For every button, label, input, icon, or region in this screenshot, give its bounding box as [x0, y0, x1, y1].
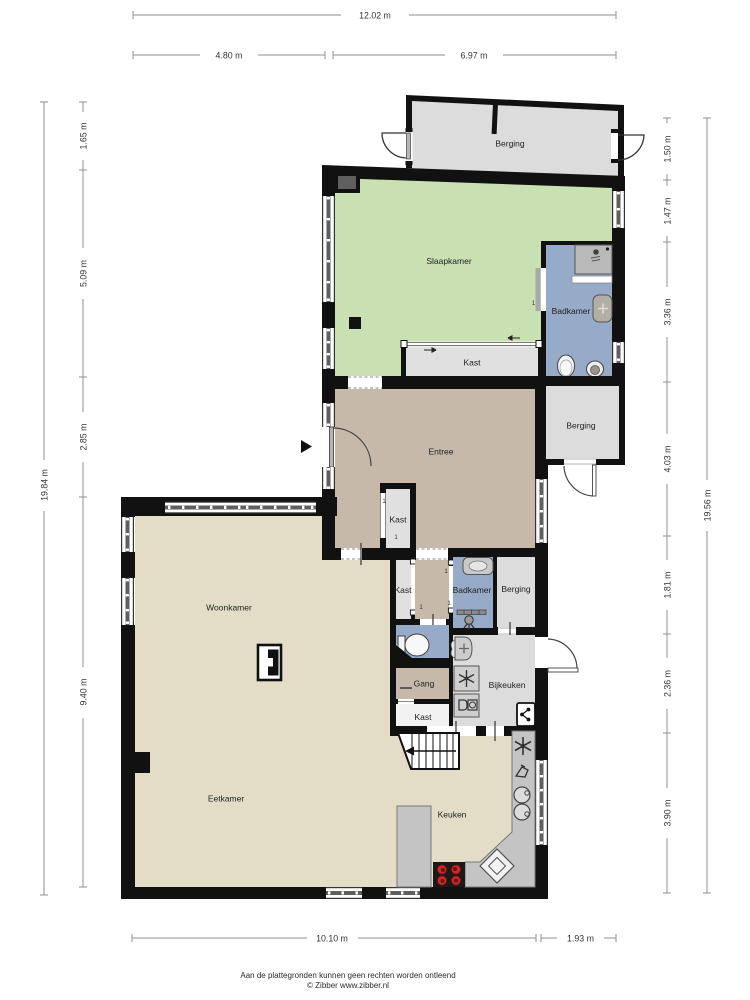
svg-text:Slaapkamer: Slaapkamer: [426, 256, 472, 266]
svg-text:Aan de plattegronden kunnen ge: Aan de plattegronden kunnen geen rechten…: [240, 971, 455, 980]
svg-text:2.36 m: 2.36 m: [663, 670, 673, 697]
svg-text:Berging: Berging: [501, 584, 531, 594]
svg-text:Kast: Kast: [414, 712, 432, 722]
svg-text:1.47 m: 1.47 m: [663, 198, 673, 225]
svg-text:1.81 m: 1.81 m: [663, 572, 673, 599]
svg-text:© Zibber www.zibber.nl: © Zibber www.zibber.nl: [307, 981, 389, 990]
svg-text:Badkamer: Badkamer: [552, 306, 591, 316]
svg-text:Woonkamer: Woonkamer: [206, 603, 252, 613]
svg-text:4.03 m: 4.03 m: [663, 446, 673, 473]
svg-text:Gang: Gang: [414, 679, 435, 689]
svg-text:Bijkeuken: Bijkeuken: [489, 680, 526, 690]
svg-text:1.50 m: 1.50 m: [663, 136, 673, 163]
svg-text:1.93 m: 1.93 m: [567, 934, 594, 944]
svg-text:6.97 m: 6.97 m: [461, 51, 488, 61]
svg-text:Kast: Kast: [463, 358, 481, 368]
svg-text:4.80 m: 4.80 m: [216, 51, 243, 61]
svg-text:5.09 m: 5.09 m: [79, 260, 89, 287]
svg-text:Berging: Berging: [495, 139, 525, 149]
svg-text:19.56 m: 19.56 m: [703, 490, 713, 522]
svg-text:Kast: Kast: [389, 515, 407, 525]
svg-text:19.84 m: 19.84 m: [40, 469, 50, 501]
svg-text:2.85 m: 2.85 m: [79, 424, 89, 451]
svg-text:10.10 m: 10.10 m: [316, 934, 348, 944]
svg-text:12.02 m: 12.02 m: [359, 11, 391, 21]
svg-text:Keuken: Keuken: [438, 810, 467, 820]
svg-text:3.36 m: 3.36 m: [663, 299, 673, 326]
svg-text:Entree: Entree: [428, 447, 453, 457]
svg-text:1.65 m: 1.65 m: [79, 123, 89, 150]
svg-text:3.90 m: 3.90 m: [663, 800, 673, 827]
svg-text:9.40 m: 9.40 m: [79, 679, 89, 706]
svg-text:Eetkamer: Eetkamer: [208, 794, 245, 804]
svg-text:Kast: Kast: [394, 585, 412, 595]
svg-text:Badkamer: Badkamer: [453, 585, 492, 595]
svg-text:Berging: Berging: [566, 421, 596, 431]
